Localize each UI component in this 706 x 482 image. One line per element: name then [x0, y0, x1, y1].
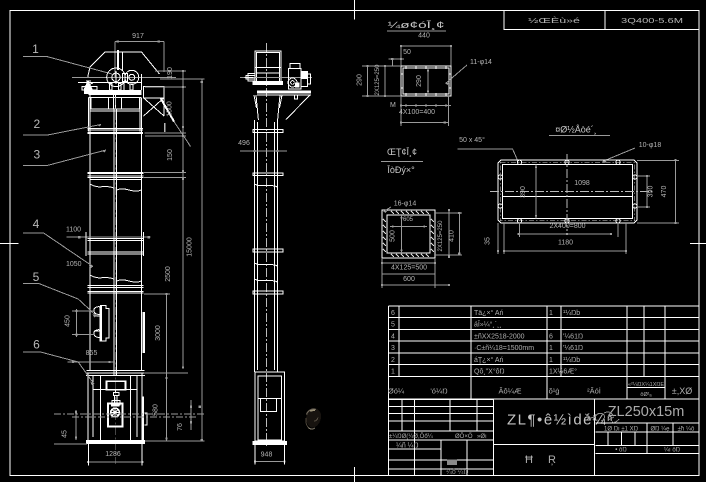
- svg-text:ĪòĐý×°: ĪòĐý×°: [387, 165, 415, 175]
- svg-text:190: 190: [167, 67, 174, 79]
- svg-text:1: 1: [549, 345, 553, 352]
- svg-text:2X400=800: 2X400=800: [549, 223, 585, 230]
- svg-text:ŒŢ¢Ī¸¢: ŒŢ¢Ī¸¢: [387, 147, 417, 157]
- svg-text:1: 1: [391, 369, 395, 376]
- svg-text:15000: 15000: [187, 237, 194, 257]
- svg-text:5: 5: [33, 270, 40, 284]
- svg-text:1500: 1500: [167, 101, 174, 117]
- svg-text:16-φ14: 16-φ14: [394, 201, 417, 208]
- svg-text:1: 1: [549, 357, 553, 364]
- svg-text:Ħ: Ħ: [525, 454, 533, 466]
- svg-text:áŢ¿×° Ań: áŢ¿×° Ań: [474, 356, 504, 364]
- svg-text:1X¼6Æ°: 1X¼6Æ°: [549, 368, 577, 376]
- svg-text:1286: 1286: [105, 451, 121, 458]
- svg-text:948: 948: [261, 452, 273, 459]
- svg-text:²Ăóİ: ²Ăóİ: [587, 387, 601, 396]
- svg-text:'¼61Ŋ: '¼61Ŋ: [563, 345, 583, 352]
- svg-text:• ôŊ: • ôŊ: [615, 448, 626, 454]
- svg-text:6: 6: [391, 310, 395, 317]
- svg-text:Qô¸"X°ôŊ: Qô¸"X°ôŊ: [474, 368, 505, 376]
- svg-text:50 x 45°: 50 x 45°: [459, 136, 485, 144]
- svg-text:6: 6: [549, 333, 553, 340]
- svg-text:¼ı ôŊ: ¼ı ôŊ: [664, 448, 680, 454]
- svg-text:Ŗ: Ŗ: [548, 454, 556, 466]
- svg-text:±ħ ¼ŏ: ±ħ ¼ŏ: [678, 427, 695, 433]
- svg-text:917: 917: [132, 33, 144, 40]
- svg-text:4X125=500: 4X125=500: [391, 265, 427, 272]
- svg-text:ZL250x15m: ZL250x15m: [608, 404, 685, 420]
- svg-text:»Øı: »Øı: [477, 434, 487, 440]
- svg-text:76: 76: [177, 423, 184, 431]
- svg-text:¼ñ ¼Ŋ: ¼ñ ¼Ŋ: [396, 443, 419, 450]
- svg-text:ôØ¹ₐ: ôØ¹ₐ: [640, 392, 652, 398]
- svg-text:290: 290: [357, 74, 364, 86]
- svg-text:4: 4: [33, 217, 40, 231]
- svg-text:,Ŏő¼: ,Ŏő¼: [418, 433, 434, 440]
- svg-text:±¼ŊØ(¼Ø: ±¼ŊØ(¼Ø: [389, 434, 418, 440]
- svg-text:ØŌ×Ő: ØŌ×Ő: [455, 433, 473, 440]
- svg-text:390: 390: [648, 186, 655, 198]
- svg-text:605: 605: [403, 217, 414, 223]
- svg-text:50: 50: [403, 49, 411, 56]
- svg-text:10-φ18: 10-φ18: [639, 142, 662, 149]
- svg-text:ŏ¹ġ: ŏ¹ġ: [549, 387, 560, 396]
- svg-text:470: 470: [661, 186, 668, 198]
- svg-text:áĪ»¼°¸´¸¸: áĪ»¼°¸´¸¸: [474, 321, 502, 329]
- svg-text:«²¼ŊX¼1XŊE: «²¼ŊX¼1XŊE: [628, 382, 664, 388]
- svg-text:Tä¿×° Ań: Tä¿×° Ań: [474, 309, 504, 317]
- svg-text:Øó¼: Øó¼: [388, 387, 405, 396]
- svg-text:450: 450: [65, 315, 72, 327]
- svg-text:865: 865: [86, 350, 98, 357]
- svg-text:4X100=400: 4X100=400: [399, 109, 435, 116]
- svg-text:45: 45: [62, 430, 69, 438]
- svg-text:¤Ø½Åòé´¸: ¤Ø½Åòé´¸: [555, 125, 597, 135]
- svg-text:ØŊ ¼ę: ØŊ ¼ę: [650, 427, 670, 433]
- svg-text:500: 500: [390, 230, 397, 242]
- svg-text:496: 496: [238, 140, 250, 147]
- svg-text:±,XØ: ±,XØ: [672, 386, 692, 396]
- svg-text:±ñXX2518-2000: ±ñXX2518-2000: [474, 333, 525, 340]
- svg-text:2: 2: [391, 357, 395, 364]
- svg-text:½ŒÈù»é: ½ŒÈù»é: [528, 16, 580, 25]
- svg-text:¼ø¢óĪ¸¢: ¼ø¢óĪ¸¢: [388, 20, 445, 30]
- svg-text:1180: 1180: [558, 240, 573, 247]
- svg-text:·C±ñ¼18=1500mm: ·C±ñ¼18=1500mm: [474, 345, 534, 352]
- svg-text:2500: 2500: [165, 266, 172, 282]
- svg-text:600: 600: [403, 276, 415, 283]
- svg-text:3Q400-5.6M: 3Q400-5.6M: [621, 18, 683, 25]
- svg-text:1098: 1098: [574, 180, 590, 187]
- svg-text:3: 3: [391, 345, 395, 352]
- svg-text:M: M: [390, 102, 396, 109]
- svg-text:1: 1: [549, 310, 553, 317]
- svg-text:5: 5: [391, 322, 395, 329]
- svg-text:2: 2: [33, 117, 40, 131]
- svg-text:2X125=250: 2X125=250: [375, 64, 381, 96]
- svg-text:2X125=250: 2X125=250: [438, 220, 444, 252]
- svg-text:¼ô ¼Ŋ: ¼ô ¼Ŋ: [446, 469, 469, 476]
- svg-text:'¼61Ŋ: '¼61Ŋ: [563, 333, 583, 340]
- svg-text:'ó¼Ŋ: 'ó¼Ŋ: [430, 387, 447, 396]
- svg-text:4: 4: [391, 333, 395, 340]
- svg-text:6: 6: [33, 338, 40, 352]
- svg-text:440: 440: [418, 33, 430, 40]
- svg-text:¹¼Ŋb: ¹¼Ŋb: [563, 357, 580, 364]
- svg-text:Ăô¼Æ: Ăô¼Æ: [499, 387, 522, 396]
- svg-text:35: 35: [485, 237, 492, 245]
- svg-text:290: 290: [416, 75, 423, 87]
- svg-text:3000: 3000: [155, 325, 162, 341]
- svg-text:1050: 1050: [66, 261, 82, 268]
- svg-text:1Ø Ŋı ±1 XŊ: 1Ø Ŋı ±1 XŊ: [604, 427, 638, 433]
- svg-text:410: 410: [449, 230, 456, 242]
- svg-text:3: 3: [33, 148, 40, 162]
- svg-text:1: 1: [32, 42, 39, 56]
- svg-text:1100: 1100: [66, 227, 81, 234]
- svg-text:390: 390: [520, 186, 527, 198]
- svg-text:150: 150: [167, 149, 174, 161]
- svg-text:11-φ14: 11-φ14: [470, 59, 492, 66]
- svg-text:¹¼Ŋb: ¹¼Ŋb: [563, 310, 580, 317]
